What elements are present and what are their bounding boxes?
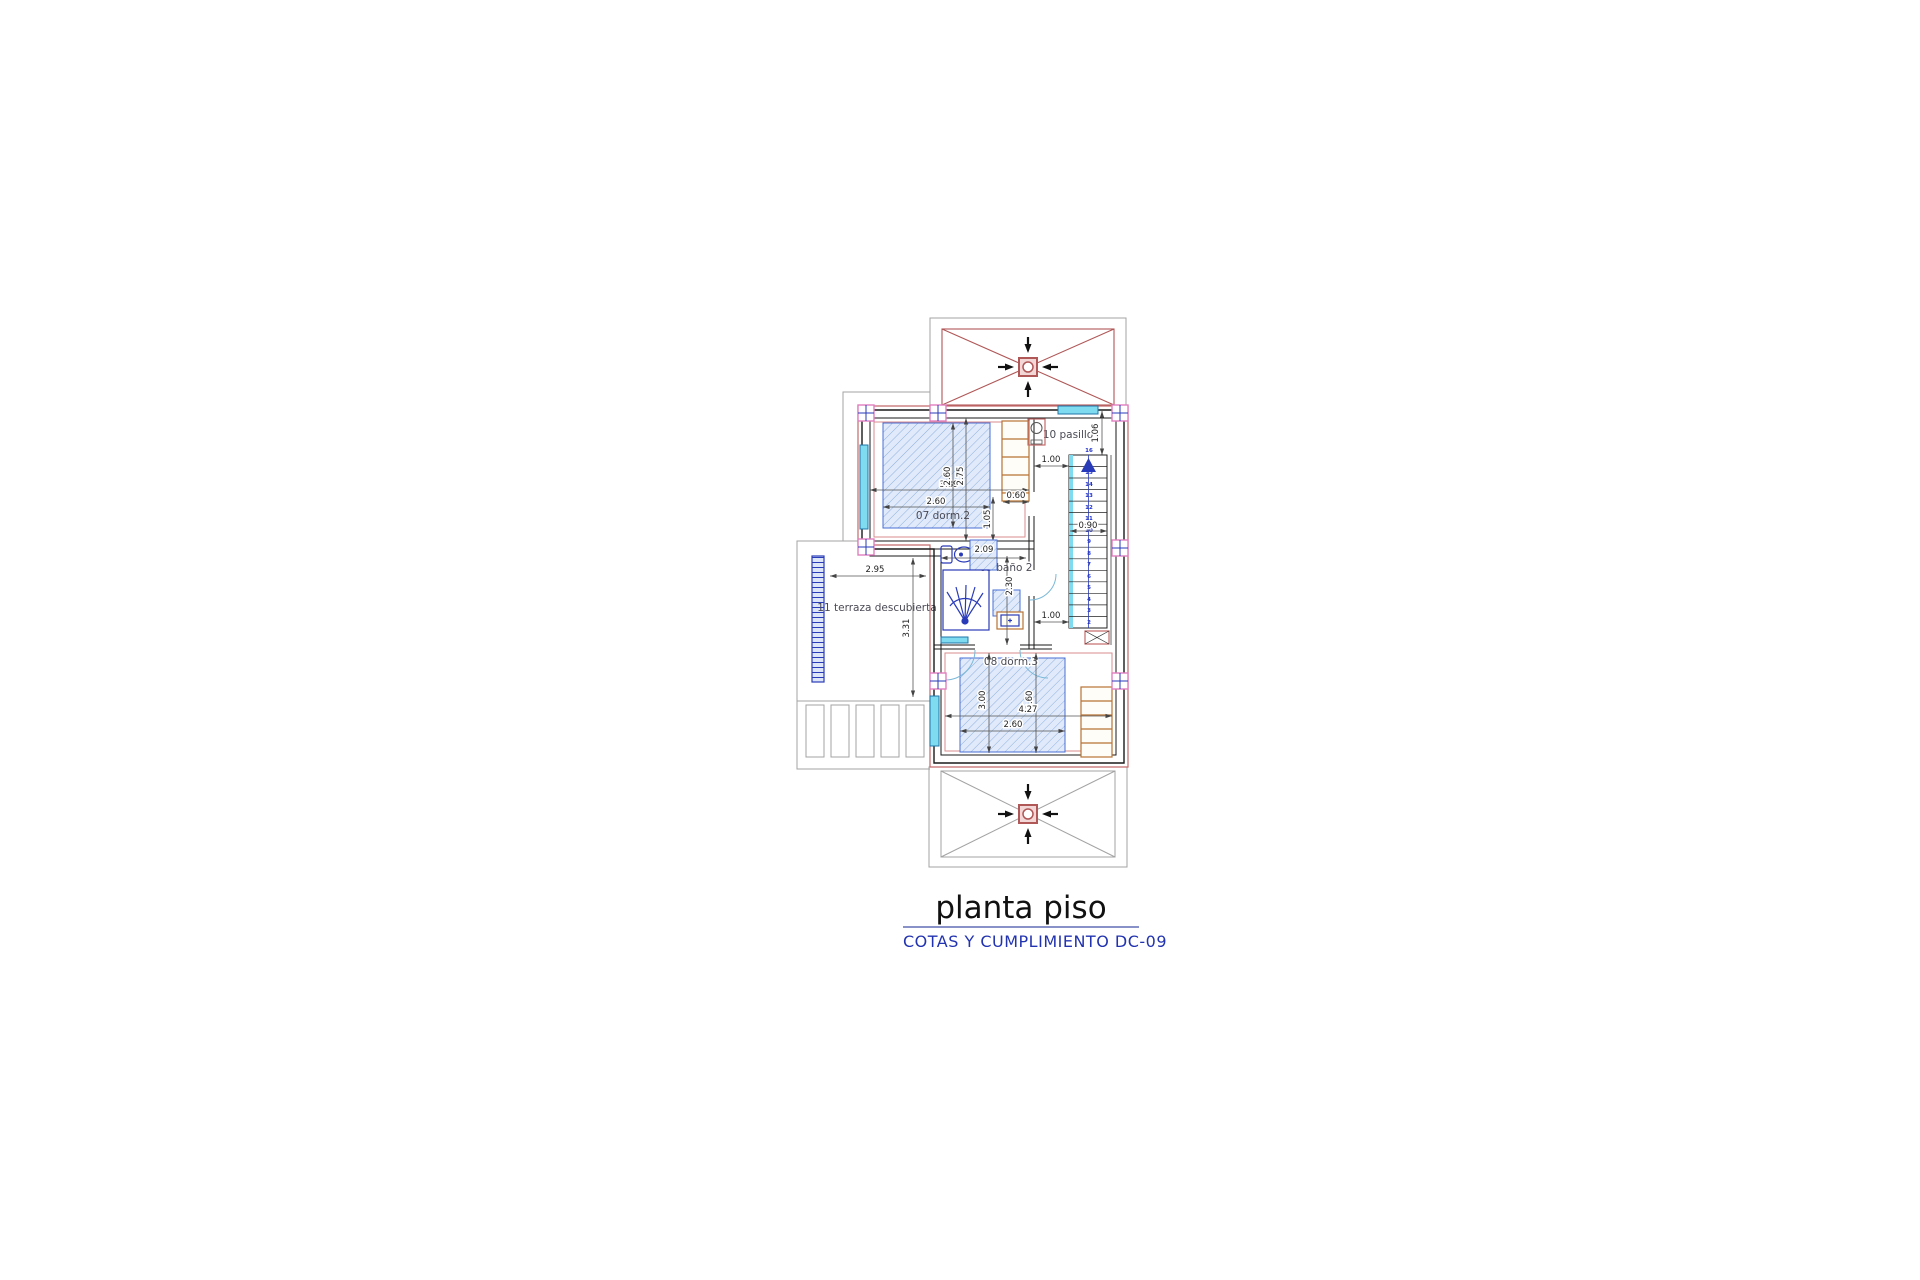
- dim-dorm3-height-room: 3.00: [978, 691, 988, 710]
- dim-dorm2-door-offset: 1.05: [983, 510, 993, 529]
- bed-dorm3: [960, 658, 1065, 752]
- dim-pasillo-bottom: 1.00: [1042, 611, 1061, 621]
- room-dorm2: 3.89 2.60 2.60 2.75 1.05 0.60 07 dorm.2: [870, 418, 1029, 541]
- svg-text:13: 13: [1085, 493, 1093, 499]
- plan-subtitle: COTAS Y CUMPLIMIENTO DC-09: [903, 932, 1139, 951]
- svg-text:4: 4: [1087, 597, 1091, 603]
- hallway-label: 10 pasillo: [1043, 429, 1093, 441]
- svg-text:8: 8: [1087, 551, 1091, 557]
- floor-plan-drawing: 2.95 3.31 11 terraza descubierta: [0, 0, 1920, 1280]
- svg-text:12: 12: [1085, 505, 1093, 511]
- stairs: 16 15 14 13 12 11 10 9 8 7 6 5 4 3 2 0.9…: [1069, 448, 1109, 644]
- dim-dorm3-width-total: 4.27: [1019, 705, 1038, 715]
- svg-text:15: 15: [1085, 470, 1093, 476]
- wardrobe-dorm3: [1081, 687, 1112, 757]
- room-bath2: 09 baño 2 2.09 2.30: [941, 540, 1056, 645]
- shower: [943, 570, 989, 630]
- roof-patio-bottom: [929, 767, 1127, 867]
- svg-text:16: 16: [1085, 448, 1093, 454]
- title-block: planta piso COTAS Y CUMPLIMIENTO DC-09: [903, 891, 1139, 951]
- dim-terraza-height: 3.31: [902, 619, 912, 638]
- dorm2-label: 07 dorm.2: [916, 510, 970, 522]
- dim-stair-width: 0.90: [1079, 521, 1098, 531]
- floor-plan-page: 2.95 3.31 11 terraza descubierta: [0, 0, 1920, 1280]
- svg-text:5: 5: [1087, 585, 1091, 591]
- room-dorm3: 08 dorm.3 3.00 2.60 4.27 2.60: [945, 650, 1112, 757]
- svg-text:7: 7: [1087, 562, 1091, 568]
- plan-title: planta piso: [903, 891, 1139, 928]
- window-top-wall: [1058, 406, 1098, 414]
- sink: [997, 612, 1023, 629]
- wardrobe-dorm2: [1002, 421, 1029, 501]
- dim-dorm3-width-bed: 2.60: [1004, 720, 1023, 730]
- dim-terraza-width: 2.95: [866, 565, 885, 575]
- dim-dorm2-door-width: 0.60: [1007, 491, 1026, 501]
- dorm3-label: 08 dorm.3: [984, 656, 1038, 668]
- svg-text:3: 3: [1087, 608, 1091, 614]
- dim-dorm2-width-bed: 2.60: [927, 497, 946, 507]
- svg-text:6: 6: [1087, 574, 1091, 580]
- pergola-slats: [806, 705, 924, 757]
- terrace-railing: [812, 556, 824, 682]
- stairs-duct: [1085, 631, 1109, 644]
- window-dorm2: [860, 445, 868, 529]
- dim-dorm2-height-room: 2.75: [956, 467, 966, 486]
- terrace-label: 11 terraza descubierta: [817, 602, 936, 614]
- svg-text:9: 9: [1087, 539, 1091, 545]
- dim-bath-width: 2.09: [975, 545, 994, 555]
- svg-text:2: 2: [1087, 620, 1091, 626]
- dim-dorm2-height-bed: 2.60: [943, 467, 953, 486]
- window-dorm3: [930, 696, 939, 746]
- window-bath: [941, 637, 968, 643]
- roof-patio-top: [930, 318, 1126, 406]
- svg-text:14: 14: [1085, 482, 1093, 488]
- dim-bath-height: 2.30: [1005, 577, 1015, 596]
- dim-pasillo-top: 1.00: [1042, 455, 1061, 465]
- stairs-rail: [1069, 455, 1073, 628]
- dim-pasillo-entry: 1.06: [1091, 424, 1101, 443]
